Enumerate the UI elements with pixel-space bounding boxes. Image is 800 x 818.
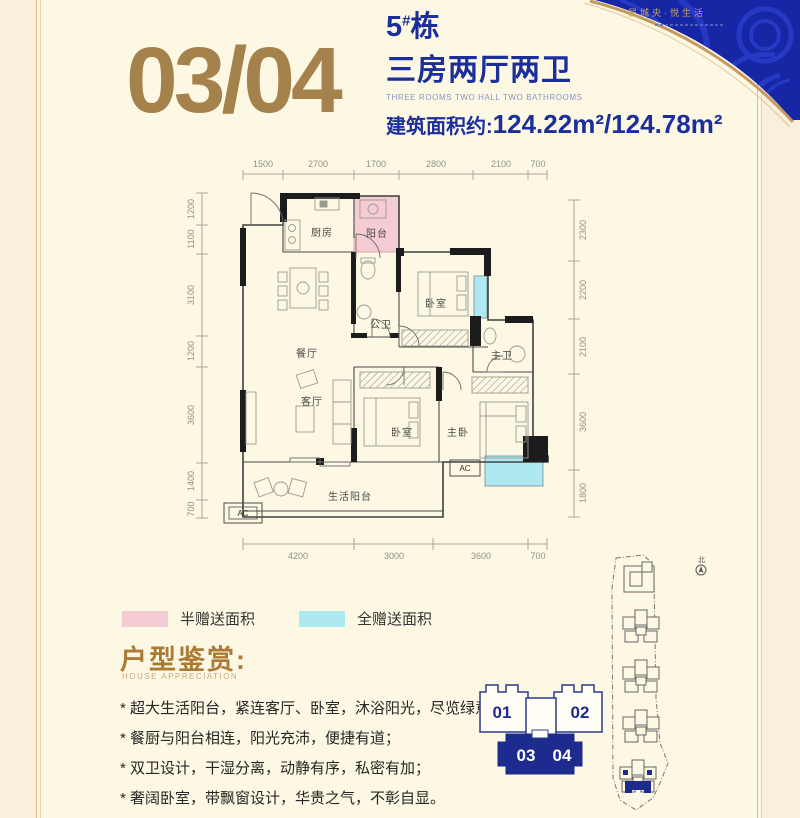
svg-text:3100: 3100	[186, 285, 196, 305]
unit-number-02: 02	[571, 703, 590, 722]
layout-title-cn: 三房两厅两卫	[386, 45, 723, 89]
room-label-public-bath: 公卫	[370, 320, 392, 331]
svg-text:2100: 2100	[578, 337, 588, 357]
legend-label-half-gift: 半赠送面积	[180, 608, 255, 629]
svg-text:2700: 2700	[308, 159, 328, 169]
svg-text:1200: 1200	[186, 341, 196, 361]
svg-text:2300: 2300	[578, 220, 588, 240]
room-label-kitchen: 厨房	[311, 226, 333, 239]
room-label-balcony: 阳台	[366, 227, 388, 240]
north-indicator: 北	[696, 556, 706, 575]
svg-text:3600: 3600	[471, 551, 491, 561]
appreciation-point: * 餐厨与阳台相连，阳光充沛，便捷有道；	[120, 724, 500, 754]
svg-text:4200: 4200	[288, 551, 308, 561]
poster-page: 居城央·悦生活 03/04 5#栋 三房两厅两卫 THREE ROOMS TWO…	[0, 0, 800, 818]
unit-numbers-heading: 03/04	[126, 34, 339, 127]
legend: 半赠送面积 全赠送面积	[122, 608, 476, 629]
svg-text:2100: 2100	[491, 159, 511, 169]
legend-swatch-half-gift	[122, 611, 168, 627]
site-building-4	[623, 710, 659, 742]
unit-number-01: 01	[493, 703, 512, 722]
area-line: 建筑面积约:124.22m²/124.78m²	[386, 109, 723, 140]
room-label-bedroom-a: 卧室	[425, 297, 447, 310]
svg-text:1500: 1500	[253, 159, 273, 169]
ac-label-2: AC	[459, 464, 470, 473]
svg-text:700: 700	[186, 501, 196, 516]
left-margin	[0, 0, 36, 818]
area-label: 建筑面积约:	[386, 116, 493, 138]
svg-text:1800: 1800	[578, 483, 588, 503]
area-value: 124.22m²/124.78m²	[493, 109, 723, 139]
unit-number-04: 04	[553, 746, 572, 765]
room-label-bedroom-b: 卧室	[391, 426, 413, 439]
site-building-3	[623, 660, 659, 692]
svg-text:3600: 3600	[186, 405, 196, 425]
svg-text:700: 700	[530, 551, 545, 561]
ac-label-1: AC	[237, 509, 248, 518]
left-frame-line-inner	[40, 0, 41, 818]
room-label-living: 客厅	[301, 395, 323, 408]
legend-label-full-gift: 全赠送面积	[357, 608, 432, 629]
svg-text:1200: 1200	[186, 199, 196, 219]
svg-text:1700: 1700	[366, 159, 386, 169]
room-label-master-bath: 主卫	[491, 350, 513, 362]
room-label-life-balcony: 生活阳台	[328, 490, 372, 503]
building-number: 5#栋	[386, 12, 723, 42]
floor-plan: 1500 2700 1700 2800 2100 700 4200 3000 3…	[150, 140, 620, 580]
north-label: 北	[698, 556, 705, 564]
legend-swatch-full-gift	[299, 611, 345, 627]
svg-text:1100: 1100	[186, 229, 196, 248]
layout-title-en: THREE ROOMS TWO HALL TWO BATHROOMS	[386, 93, 723, 102]
svg-text:700: 700	[530, 159, 545, 169]
svg-text:2200: 2200	[578, 280, 588, 300]
unit-number-03: 03	[517, 746, 536, 765]
site-building-1	[624, 562, 654, 592]
appreciation-point: * 双卫设计，干湿分离，动静有序，私密有加；	[120, 754, 500, 784]
unit-position-diagram: 01 02 03 04	[468, 672, 614, 784]
site-building-2	[623, 610, 659, 642]
appreciation-point: * 奢阔卧室，带飘窗设计，华贵之气，不彰自显。	[120, 784, 500, 814]
svg-text:2800: 2800	[426, 159, 446, 169]
full-gift-zone-baywindow-1	[474, 276, 487, 318]
room-label-dining: 餐厅	[296, 347, 318, 360]
site-plan: 北	[598, 548, 730, 818]
header-info: 5#栋 三房两厅两卫 THREE ROOMS TWO HALL TWO BATH…	[386, 12, 723, 140]
left-frame-line	[36, 0, 37, 818]
site-building-5-highlighted	[620, 760, 656, 793]
appreciation-point: * 超大生活阳台，紧连客厅、卧室，沐浴阳光，尽览绿意；	[120, 694, 500, 724]
svg-text:3600: 3600	[578, 412, 588, 432]
appreciation-points: * 超大生活阳台，紧连客厅、卧室，沐浴阳光，尽览绿意； * 餐厨与阳台相连，阳光…	[120, 694, 500, 814]
svg-text:3000: 3000	[384, 551, 404, 561]
appreciation-subtitle: HOUSE APPRECIATION	[122, 672, 238, 681]
unit-tower-notch	[532, 730, 548, 738]
room-label-master-bedroom: 主卧	[447, 426, 469, 439]
svg-text:1400: 1400	[186, 471, 196, 491]
half-gift-zone-balcony	[354, 196, 399, 252]
